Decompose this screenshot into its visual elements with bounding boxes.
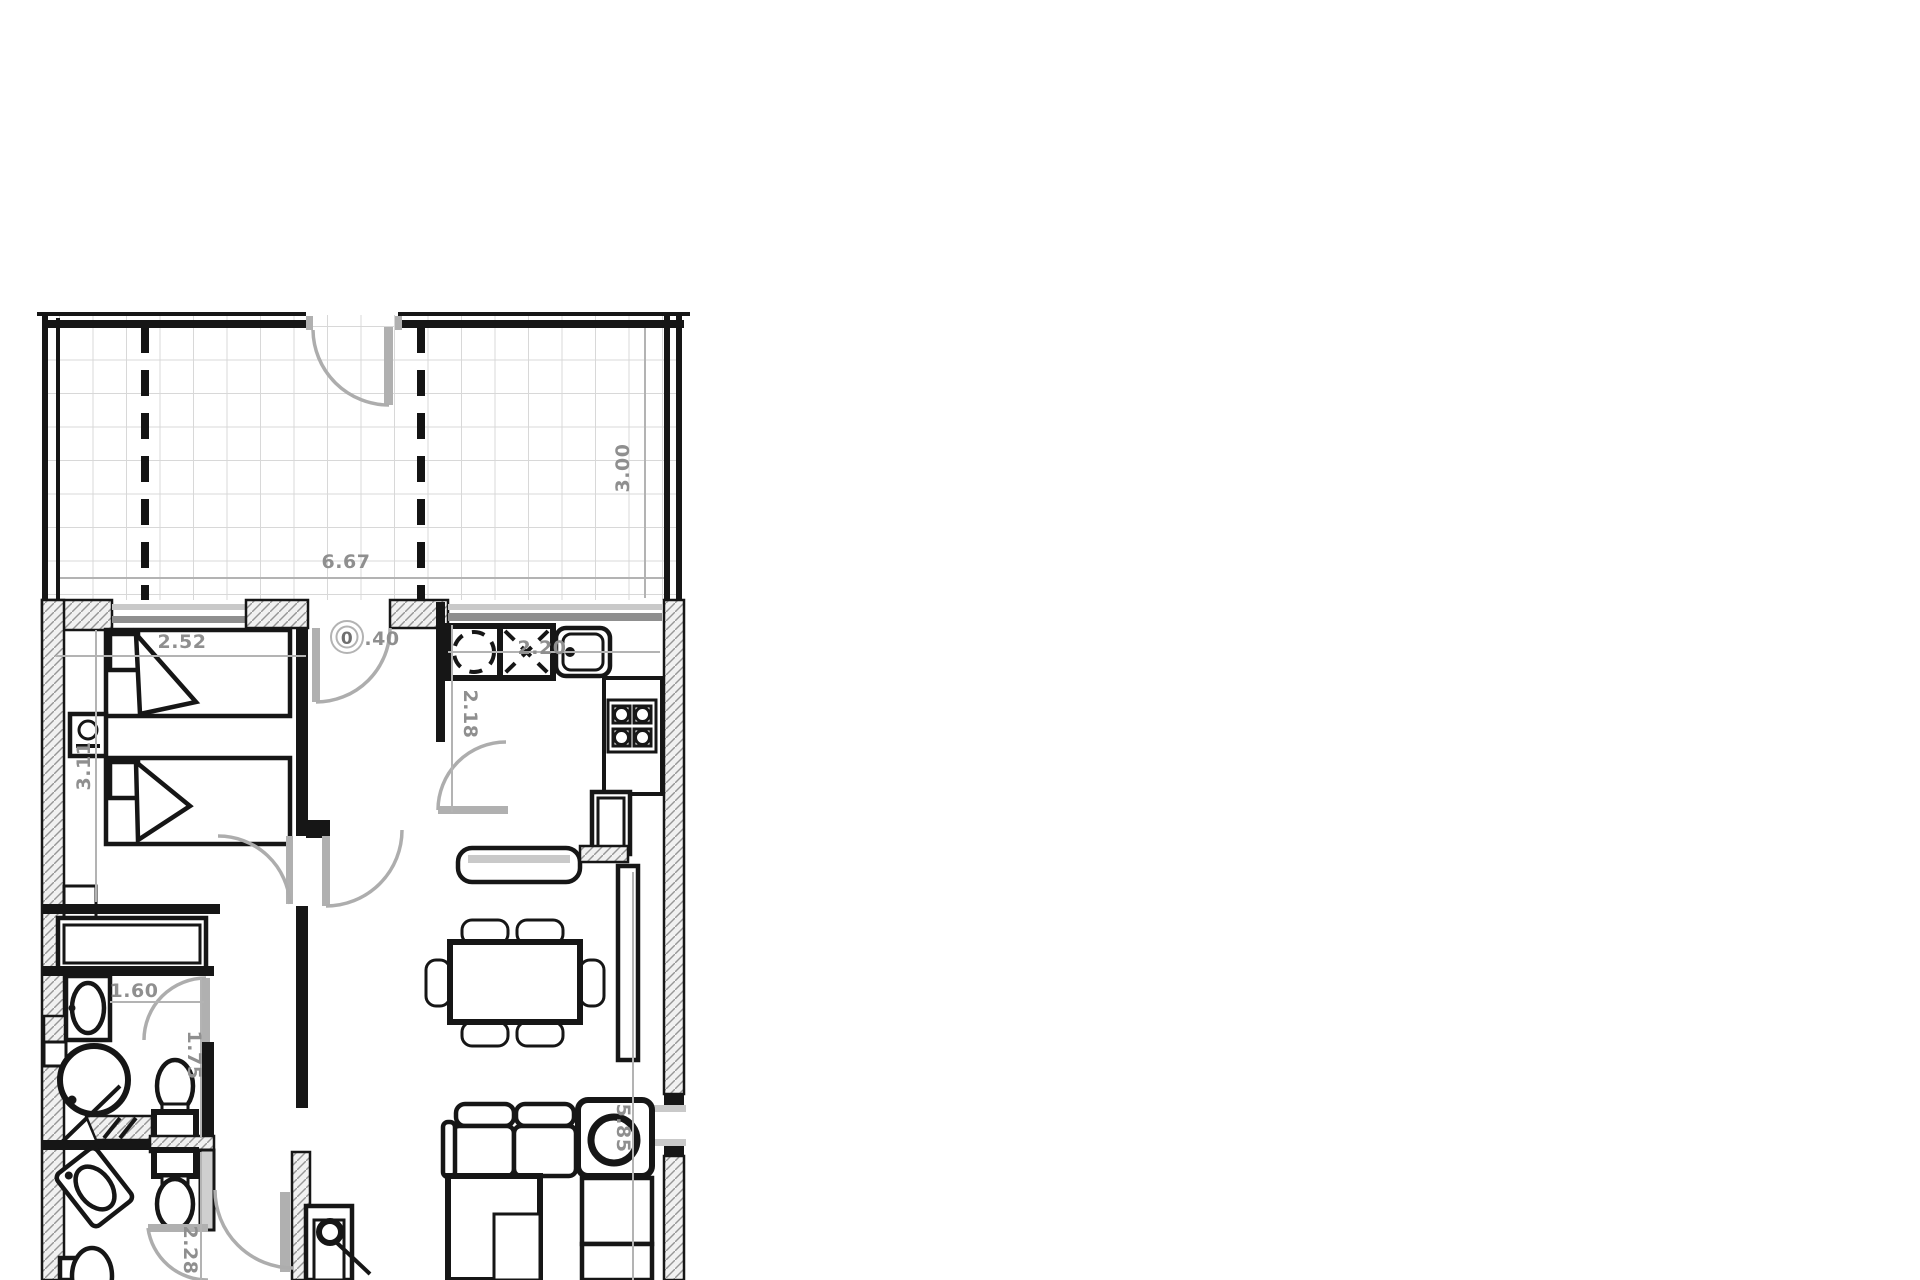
dim-terrace-depth: 3.00 xyxy=(612,444,634,493)
dining-chair xyxy=(462,1022,508,1046)
hall-marker-zero: 0 xyxy=(341,629,353,649)
dim-kitchen-width: 2.20 xyxy=(518,637,567,659)
terrace-door-jamb-left xyxy=(306,316,313,330)
hall-marker-value: .40 xyxy=(364,628,399,650)
sideboard xyxy=(618,866,638,1060)
cooktop xyxy=(608,700,656,752)
terrace-right-wall-outer xyxy=(664,312,670,602)
terrace-right-wall-inner xyxy=(676,312,682,602)
nightstand-lamp xyxy=(79,721,97,739)
entrance-panel xyxy=(306,1206,370,1280)
fridge xyxy=(592,792,630,854)
sofa-armrest xyxy=(443,1122,455,1177)
bedroom-east-wall xyxy=(296,628,308,836)
dim-bath-depth: 1.75 xyxy=(183,1031,205,1080)
burner xyxy=(615,731,629,745)
burner xyxy=(615,708,629,722)
hall-terrace-door-leaf xyxy=(312,628,320,702)
bedroom-east-pier xyxy=(306,820,330,838)
shower-drain xyxy=(68,1096,77,1105)
entrance-door-leaf xyxy=(280,1192,290,1272)
washbasin xyxy=(66,976,110,1040)
east-wall-lower xyxy=(664,1156,684,1280)
kitchen-west-wall xyxy=(436,602,445,742)
towel-radiator xyxy=(86,1116,152,1140)
bedroom-window xyxy=(112,604,246,623)
sofa-ottoman xyxy=(582,1178,652,1244)
door-handle xyxy=(319,1221,341,1243)
terrace-door-jamb-right xyxy=(395,316,402,330)
living-door xyxy=(322,830,402,906)
living-door-arc xyxy=(326,830,402,906)
terrace-outer-line-right xyxy=(398,312,690,316)
kitchen-door-arc xyxy=(438,742,506,810)
basin-faucet xyxy=(69,1005,76,1012)
sofa-back-cushion xyxy=(456,1104,514,1126)
bedroom-south-wall xyxy=(42,904,220,914)
bidet xyxy=(60,1248,112,1280)
sofa-back-cushion xyxy=(516,1104,574,1126)
dim-bedroom-depth: 3.11 xyxy=(73,742,95,791)
sofa-seat-cushion xyxy=(514,1126,576,1176)
entrance xyxy=(215,1152,370,1280)
dining-chair xyxy=(426,960,450,1006)
floor-plan-image: 6.67 3.00 2.52 3.11 0 .40 2.20 2.18 1.60… xyxy=(0,0,1920,1280)
corner-sink xyxy=(54,1146,134,1229)
terrace-top-wall-right xyxy=(398,320,684,328)
living-door-leaf xyxy=(322,836,330,906)
sofa-ottoman xyxy=(582,1244,652,1280)
wall-pier-b xyxy=(246,600,308,628)
terrace-outer-line-left xyxy=(37,312,306,316)
dim-living-depth: 5.85 xyxy=(612,1104,634,1153)
kitchen-door xyxy=(438,742,508,814)
terrace-top-wall-left xyxy=(44,320,306,328)
kitchen-counter-east xyxy=(604,678,662,794)
bath2-east-wall xyxy=(200,1150,214,1230)
dim-bath-width: 1.60 xyxy=(110,980,159,1002)
dim-terrace-width: 6.67 xyxy=(322,551,371,573)
dim-kitchen-depth: 2.18 xyxy=(459,690,481,739)
kitchen-door-leaf xyxy=(438,806,508,814)
living-west-wall xyxy=(296,906,308,1108)
bed-2-pillow xyxy=(110,762,138,798)
dim-bath2-depth: 2.28 xyxy=(179,1226,201,1275)
dining-table xyxy=(450,942,580,1022)
terrace-left-wall-inner xyxy=(56,318,60,600)
bed-1-pillow xyxy=(110,634,138,670)
dim-bedroom-width: 2.52 xyxy=(158,631,207,653)
bedroom xyxy=(42,628,330,970)
east-wall-upper xyxy=(664,600,684,1094)
toilet-2 xyxy=(154,1150,196,1229)
floor-plan: 6.67 3.00 2.52 3.11 0 .40 2.20 2.18 1.60… xyxy=(0,0,1920,1280)
burner xyxy=(636,731,650,745)
sofa-seat-cushion xyxy=(452,1126,514,1176)
twin-bed-2 xyxy=(106,758,290,844)
terrace-door-leaf xyxy=(384,327,393,405)
dining-chair xyxy=(580,960,604,1006)
burner xyxy=(636,708,650,722)
west-shaft-1 xyxy=(44,1016,66,1042)
terrace-left-wall xyxy=(42,312,48,600)
sofa-chaise-cushion xyxy=(494,1214,540,1280)
dining-chair xyxy=(517,1022,563,1046)
dining-set xyxy=(426,920,604,1046)
wardrobe xyxy=(58,918,206,970)
kitchen-living-pier xyxy=(580,846,628,862)
kitchen-window xyxy=(448,604,662,621)
kitchen-peninsula xyxy=(458,848,580,882)
